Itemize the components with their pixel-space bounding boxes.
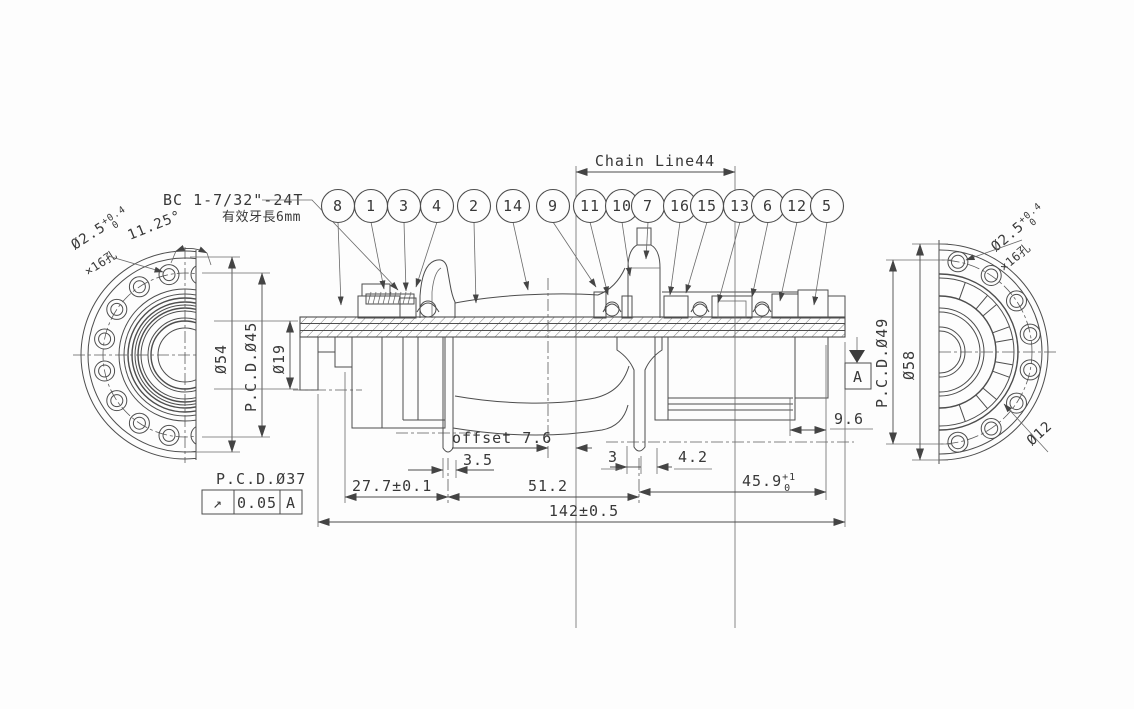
dim-overall: 142±0.5 — [549, 502, 619, 520]
dim-left-span: 27.7±0.1 — [352, 477, 432, 495]
right-flange-side-view — [832, 240, 1056, 464]
right-center-dia: Ø12 — [1024, 418, 1056, 449]
axle — [300, 317, 845, 337]
balloon-3: 3 — [399, 197, 409, 215]
left-flange — [396, 260, 480, 452]
balloon-6: 6 — [763, 197, 773, 215]
dim-left-pcd: P.C.D.Ø45 — [242, 322, 260, 412]
extension-lines — [318, 166, 845, 628]
thread-note-label: 有效牙長6mm — [222, 210, 301, 225]
datum-flag: A — [845, 337, 871, 389]
chain-line-label: Chain Line44 — [595, 152, 715, 170]
dim-offset: offset 7.6 — [452, 429, 552, 447]
dim-flange-thickness: 3.5 — [463, 451, 493, 469]
dim-left-bore: Ø19 — [270, 344, 288, 374]
balloon-2: 2 — [469, 197, 479, 215]
balloon-12: 12 — [787, 197, 807, 215]
runout-datum: A — [286, 494, 296, 512]
balloon-4: 4 — [432, 197, 442, 215]
right-cone-and-seal — [594, 292, 632, 318]
dim-center-span: 51.2 — [528, 477, 568, 495]
dim-right-span: 45.9+10 — [742, 472, 796, 494]
balloon-14: 14 — [503, 197, 523, 215]
dim-right-flange-dia: Ø58 — [900, 350, 918, 380]
balloon-13: 13 — [730, 197, 750, 215]
dim-left-flange-dia: Ø54 — [212, 344, 230, 374]
balloon-9: 9 — [548, 197, 558, 215]
left-hole-spec: Ø2.5+0.40 — [68, 204, 133, 256]
dim-web: 3 — [608, 448, 618, 466]
dim-end-gap: 9.6 — [834, 410, 864, 428]
dim-offset-r: 4.2 — [678, 448, 708, 466]
balloons: 8 1 3 4 2 14 9 11 10 7 16 15 13 6 12 5 — [322, 190, 844, 223]
datum-label: A — [853, 368, 863, 386]
left-rotor-pcd: P.C.D.Ø37 — [216, 470, 306, 488]
runout-symbol: ↗ — [213, 494, 223, 512]
balloon-7: 7 — [643, 197, 653, 215]
balloon-8: 8 — [333, 197, 343, 215]
left-hole-count: ×16孔 — [82, 247, 120, 278]
hole-angle-label: 11.25° — [126, 208, 184, 244]
balloon-11: 11 — [580, 197, 600, 215]
right-flange — [606, 228, 854, 451]
balloon-15: 15 — [697, 197, 717, 215]
balloon-5: 5 — [822, 197, 832, 215]
left-thread-and-locknut — [358, 284, 416, 318]
balloon-leaders — [338, 222, 827, 305]
runout-tolerance-frame: ↗ 0.05 A — [202, 490, 302, 514]
balloon-1: 1 — [366, 197, 376, 215]
freehub-body — [655, 290, 845, 420]
hub-barrel — [453, 268, 629, 435]
hub-engineering-drawing: Chain Line44 offset 7.6 3.5 3 4.2 9.6 27… — [0, 0, 1134, 709]
hub-section-view — [293, 228, 854, 452]
runout-value: 0.05 — [237, 494, 277, 512]
dim-right-pcd: P.C.D.Ø49 — [873, 318, 891, 408]
drawing-canvas: Chain Line44 offset 7.6 3.5 3 4.2 9.6 27… — [0, 0, 1134, 709]
left-hub-shoulder — [352, 337, 445, 428]
balloon-10: 10 — [612, 197, 632, 215]
balloon-16: 16 — [670, 197, 690, 215]
